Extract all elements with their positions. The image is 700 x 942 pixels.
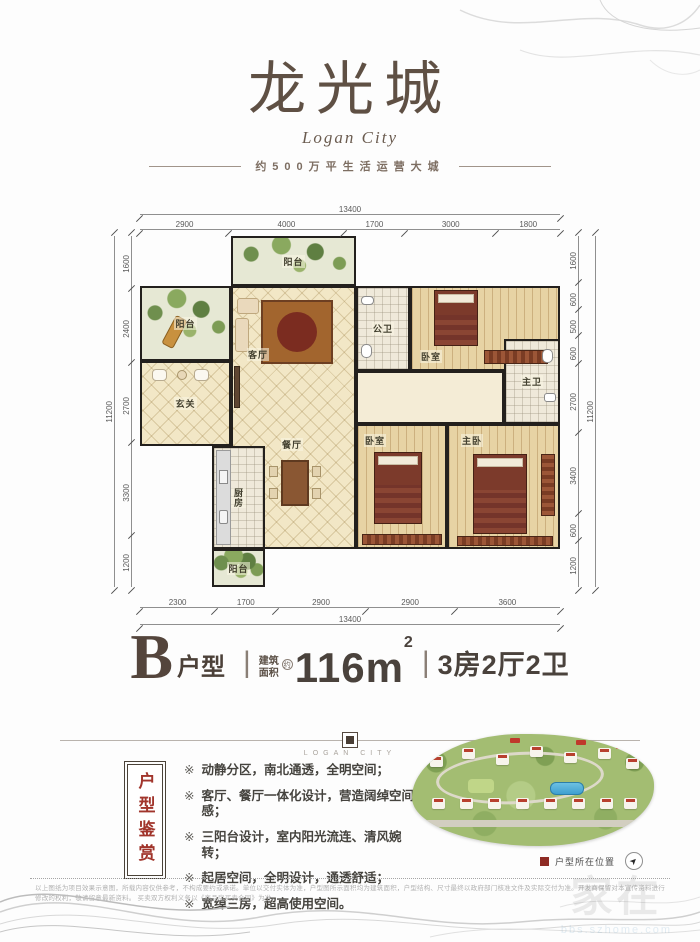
bed (434, 290, 478, 346)
tagline-line-right (459, 166, 551, 167)
unit-type-label: 户型 (177, 647, 225, 682)
legend-color-icon (540, 857, 549, 866)
legend-label: 户型所在位置 (555, 855, 615, 868)
disclaimer-line1: 以上图纸为项目效果示意图，所载内容仅供参考，不构成要约或承诺。单位以交付实体为准… (35, 885, 665, 902)
unit-spec: 3房2厅2卫 (438, 643, 570, 682)
unit-letter: B (130, 630, 173, 684)
bay-planter (457, 536, 553, 546)
feature-item: ※动静分区，南北通透，全明空间； (184, 763, 420, 779)
building (488, 798, 501, 809)
room-label: 主卫 (521, 375, 543, 388)
dining-table (281, 460, 309, 506)
brand-subtitle: Logan City (0, 128, 700, 148)
compass-icon: ➤ (625, 852, 643, 870)
toilet (361, 344, 372, 358)
features-tab-label: 户型鉴赏 (133, 772, 158, 868)
lawn (468, 779, 494, 793)
dim-bottom-total: 13400 (140, 610, 560, 625)
dim-right-total: 11200 (583, 236, 598, 587)
building-tag (616, 744, 626, 749)
room-balcony-bottom: 阳台 (212, 549, 265, 587)
floorplan: 13400 2900 4000 1700 3000 1800 11200 160… (100, 200, 600, 628)
siteplan-map (412, 734, 654, 846)
room-bath-public: 公卫 (356, 286, 410, 371)
sink (219, 510, 228, 524)
building (496, 754, 509, 765)
building (572, 798, 585, 809)
dining-chair (312, 466, 321, 477)
building (626, 758, 639, 769)
disclaimer-line2: 买卖双方权利义务以《商品房买卖合同》为准。 (138, 895, 279, 902)
features-tab: 户型鉴赏 (127, 764, 163, 876)
sofa (235, 318, 249, 352)
room-bedroom-top: 卧室 (410, 286, 560, 371)
poster-page: 龙光城 Logan City 约500万平生活运营大城 13400 2900 4… (0, 0, 700, 942)
watermark-subtext: bbs.szhome.com (561, 924, 672, 936)
dim-bottom-segments: 2300 1700 2900 2900 3600 (140, 593, 560, 608)
building (564, 752, 577, 763)
room-label: 主卧 (461, 434, 483, 447)
feature-text: 动静分区，南北通透，全明空间； (201, 763, 389, 779)
sofa (237, 298, 259, 314)
road-bottom (420, 820, 646, 827)
armchair (152, 369, 167, 381)
dining-chair (269, 488, 278, 499)
building (598, 748, 611, 759)
room-bedroom-second: 卧室 (356, 424, 447, 549)
footer-divider (30, 878, 670, 879)
bullet-marker: ※ (184, 830, 194, 861)
area-value: 116m2 (295, 651, 414, 685)
side-table (177, 370, 187, 380)
dining-chair (312, 488, 321, 499)
bullet-marker: ※ (184, 763, 194, 779)
bay-planter (362, 534, 442, 545)
bed (473, 454, 527, 534)
pool (550, 782, 584, 795)
plan-body: 阳台 阳台 玄关 客厅 餐厅 (140, 236, 560, 587)
stove (219, 470, 228, 484)
building-tag (576, 740, 586, 745)
wardrobe (541, 454, 555, 516)
approx-badge: 约 (282, 659, 293, 670)
brand-header: 龙光城 Logan City (0, 42, 700, 148)
room-label: 厨房 (231, 488, 246, 508)
building (530, 746, 543, 757)
dim-top-total: 13400 (140, 200, 560, 215)
washbasin (361, 296, 374, 305)
washbasin (544, 393, 556, 402)
room-label: 阳台 (227, 562, 249, 575)
area-superscript: 2 (404, 634, 414, 651)
tv-cabinet (234, 366, 240, 408)
building (624, 798, 637, 809)
room-label: 卧室 (420, 350, 442, 363)
building (516, 798, 529, 809)
separator: | (422, 646, 430, 680)
toilet (542, 349, 553, 363)
divider-caption: LOGAN CITY (304, 750, 396, 757)
room-label: 阳台 (174, 317, 196, 330)
building (432, 798, 445, 809)
room-foyer: 玄关 (140, 361, 231, 446)
separator: | (243, 646, 251, 680)
tagline-line-left (149, 166, 241, 167)
bed (374, 452, 422, 524)
feature-item: ※客厅、餐厅一体化设计，营造阔绰空间感； (184, 789, 420, 820)
armchair (194, 369, 209, 381)
dining-chair (269, 466, 278, 477)
room-label-dining: 餐厅 (281, 438, 303, 451)
building-tag (442, 740, 452, 745)
brand-title: 龙光城 (0, 42, 700, 126)
dim-right-segments: 1600 600 500 600 2700 3400 600 1200 (566, 236, 581, 587)
disclaimer: 以上图纸为项目效果示意图，所载内容仅供参考，不构成要约或承诺。单位以交付实体为准… (35, 884, 665, 905)
room-label: 公卫 (372, 322, 394, 335)
dim-left-total: 11200 (102, 236, 117, 587)
area-label: 建筑 面积 (259, 656, 279, 679)
room-kitchen: 厨房 (212, 446, 265, 549)
unit-info: B 户型 | 建筑 面积 约 116m2 | 3房2厅2卫 (0, 630, 700, 684)
bullet-marker: ※ (184, 789, 194, 820)
living-rug-center (277, 312, 317, 352)
building (600, 798, 613, 809)
building (462, 748, 475, 759)
room-label: 玄关 (174, 397, 196, 410)
kitchen-counter (216, 450, 231, 545)
tagline-row: 约500万平生活运营大城 (0, 158, 700, 174)
room-label: 阳台 (282, 255, 304, 268)
building (430, 756, 443, 767)
corridor (356, 371, 504, 424)
square-logo-icon (342, 732, 358, 748)
siteplan-legend: 户型所在位置 ➤ (540, 852, 643, 870)
feature-item: ※三阳台设计，室内阳光流连、清风婉转； (184, 830, 420, 861)
building-tag (510, 738, 520, 743)
tagline-text: 约500万平生活运营大城 (255, 158, 444, 174)
dim-left-segments: 1600 2400 2700 3300 1200 (119, 236, 134, 587)
room-bedroom-master: 主卧 (447, 424, 560, 549)
feature-text: 客厅、餐厅一体化设计，营造阔绰空间感； (201, 789, 420, 820)
feature-text: 三阳台设计，室内阳光流连、清风婉转； (201, 830, 420, 861)
room-label-living: 客厅 (247, 348, 269, 361)
room-label: 卧室 (364, 434, 386, 447)
dim-top-segments: 2900 4000 1700 3000 1800 (140, 215, 560, 230)
building (460, 798, 473, 809)
wardrobe (484, 350, 548, 364)
building (544, 798, 557, 809)
room-balcony-top: 阳台 (231, 236, 356, 286)
room-balcony-left: 阳台 (140, 286, 231, 361)
